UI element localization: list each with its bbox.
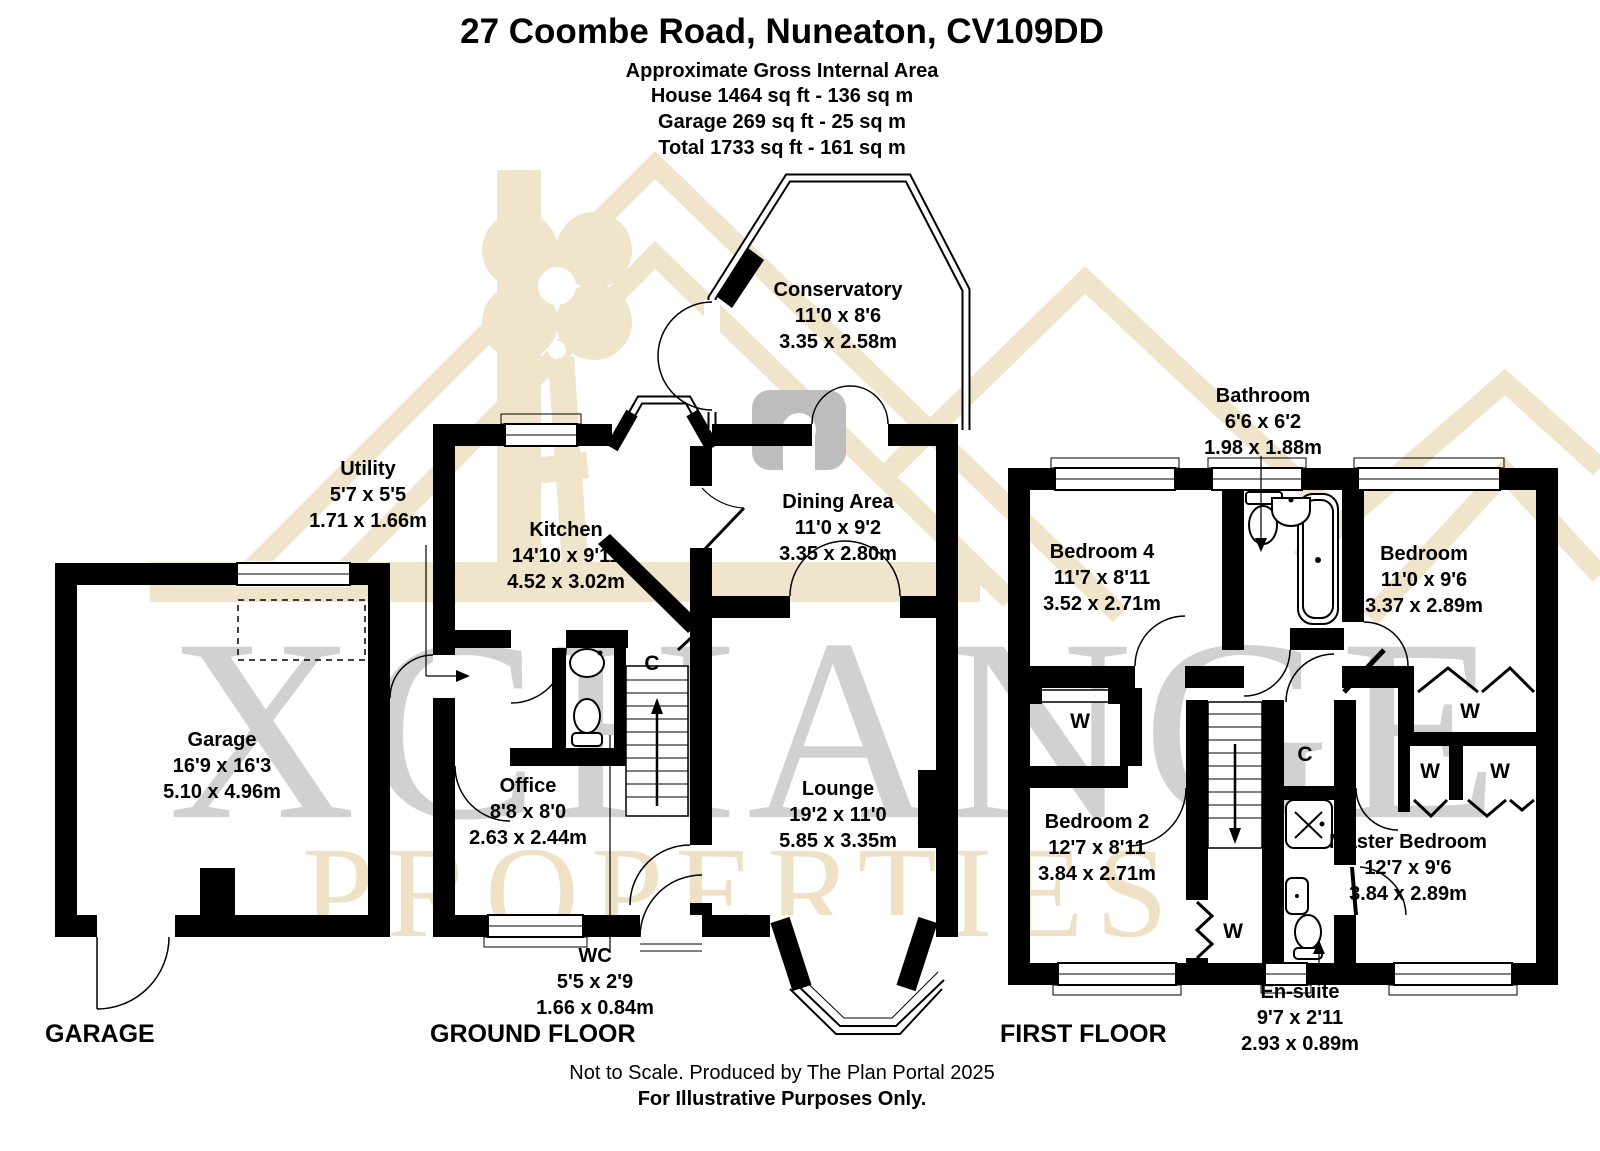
floorplan-graphics [0, 0, 1600, 1151]
cupboard-label-ground: C [644, 652, 659, 676]
first-floor-top-windows [1051, 458, 1504, 490]
room-label-utility: Utility5'7 x 5'51.71 x 1.66m [309, 456, 427, 534]
garage-door-swing [97, 937, 169, 1009]
area-garage: Garage 269 sq ft - 25 sq m [0, 111, 1564, 134]
area-total: Total 1733 sq ft - 161 sq m [0, 137, 1564, 160]
room-label-lounge: Lounge19'2 x 11'05.85 x 3.35m [779, 776, 897, 854]
wardrobe-cluster [1398, 666, 1536, 816]
room-label-wc: WC5'5 x 2'91.66 x 0.84m [536, 943, 654, 1021]
garage-dashed-area [238, 600, 365, 660]
wardrobe-label-master-left: W [1420, 760, 1440, 784]
footer-disclaimer: Not to Scale. Produced by The Plan Porta… [0, 1062, 1564, 1085]
sink-icon [1272, 498, 1310, 527]
first-floor-plan [1008, 456, 1558, 995]
cupboard-label-first: C [1297, 743, 1312, 767]
stairs-ground [626, 666, 688, 816]
stairs-first [1208, 702, 1262, 848]
lounge-bay-window [770, 915, 944, 1034]
room-label-master-bedroom: Master Bedroom12'7 x 9'63.84 x 2.89m [1329, 829, 1487, 907]
room-label-office: Office8'8 x 8'02.63 x 2.44m [469, 773, 587, 851]
area-house: House 1464 sq ft - 136 sq m [0, 85, 1564, 108]
shower-icon [1286, 800, 1332, 848]
room-label-garage: Garage16'9 x 16'35.10 x 4.96m [163, 727, 281, 805]
floor-title-ground: GROUND FLOOR [430, 1020, 636, 1049]
room-label-kitchen: Kitchen14'10 x 9'114.52 x 3.02m [507, 517, 625, 595]
area-subtitle: Approximate Gross Internal Area [0, 60, 1564, 83]
page-title: 27 Coombe Road, Nuneaton, CV109DD [0, 12, 1564, 52]
floor-title-first: FIRST FLOOR [1000, 1020, 1167, 1049]
floor-title-garage: GARAGE [45, 1020, 155, 1049]
room-label-bedroom4: Bedroom 411'7 x 8'113.52 x 2.71m [1043, 539, 1161, 617]
footer-illustrative: For Illustrative Purposes Only. [0, 1088, 1564, 1111]
sink-icon [570, 649, 604, 677]
floorplan-page: XCHANGE PROPERTIES [0, 0, 1600, 1151]
room-label-ensuite: En-suite9'7 x 2'112.93 x 0.89m [1241, 979, 1359, 1057]
room-label-conservatory: Conservatory11'0 x 8'63.35 x 2.58m [774, 277, 903, 355]
room-label-dining: Dining Area11'0 x 9'23.35 x 2.80m [779, 489, 897, 567]
room-label-bedroom: Bedroom11'0 x 9'63.37 x 2.89m [1365, 541, 1483, 619]
wardrobe-label-bedroom4: W [1070, 710, 1090, 734]
sink-icon [1286, 878, 1308, 914]
wardrobe-label-bedroom2: W [1223, 920, 1243, 944]
toilet-icon [572, 699, 602, 746]
wardrobe-label-master-right: W [1490, 760, 1510, 784]
room-label-bathroom: Bathroom6'6 x 6'21.98 x 1.88m [1204, 383, 1322, 461]
wardrobe-label-bedroom: W [1460, 700, 1480, 724]
room-label-bedroom2: Bedroom 212'7 x 8'113.84 x 2.71m [1038, 809, 1156, 887]
